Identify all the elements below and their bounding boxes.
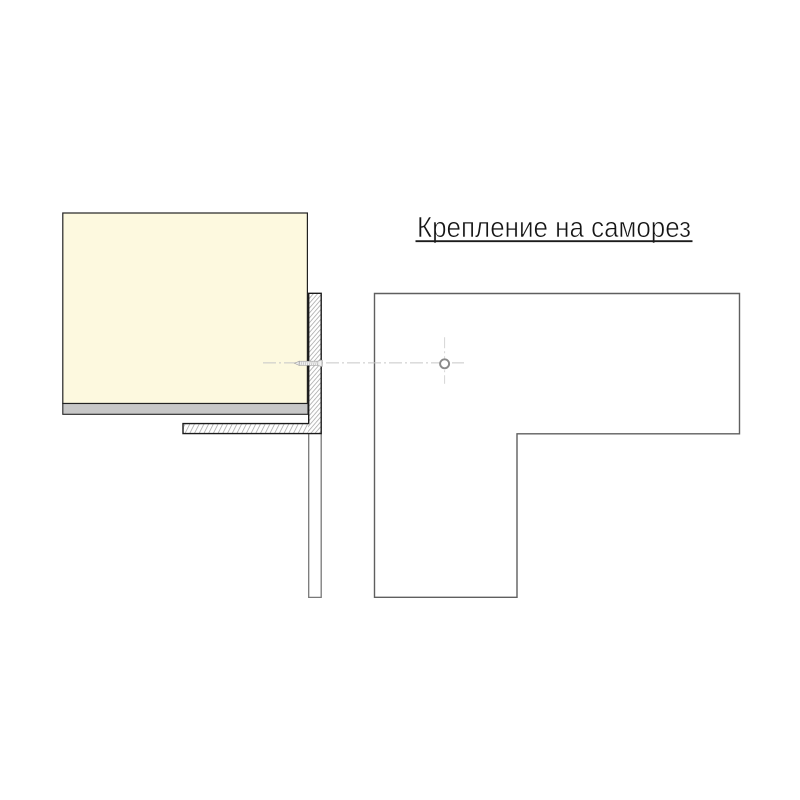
svg-text:Крепление на саморез: Крепление на саморез [417, 212, 691, 244]
